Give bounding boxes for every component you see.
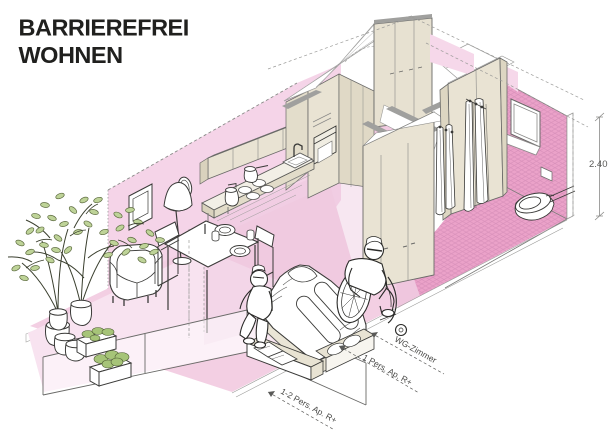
svg-text:WOHNEN: WOHNEN	[19, 42, 123, 68]
svg-text:2.40: 2.40	[589, 159, 608, 170]
svg-text:BARRIEREFREI: BARRIEREFREI	[19, 14, 189, 40]
